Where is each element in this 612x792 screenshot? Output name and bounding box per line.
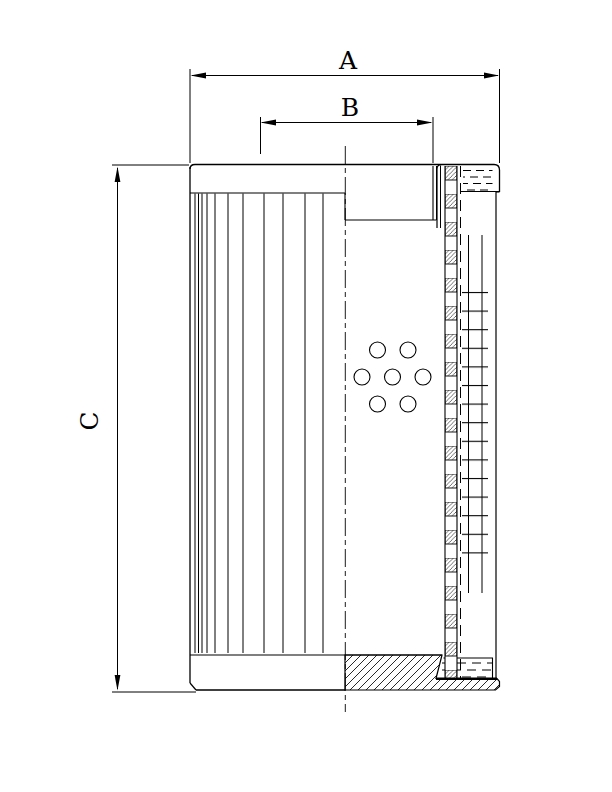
technical-drawing-page: A B C	[0, 0, 612, 792]
dim-c-label: C	[75, 411, 104, 430]
mesh-cross-ticks	[462, 290, 488, 554]
dim-b-label: B	[341, 93, 359, 122]
drawing-background	[0, 0, 612, 792]
dim-a-label: A	[338, 46, 358, 75]
core-tube-hatch-squares	[445, 166, 457, 680]
filter-element-technical-drawing: A B C	[0, 0, 612, 792]
